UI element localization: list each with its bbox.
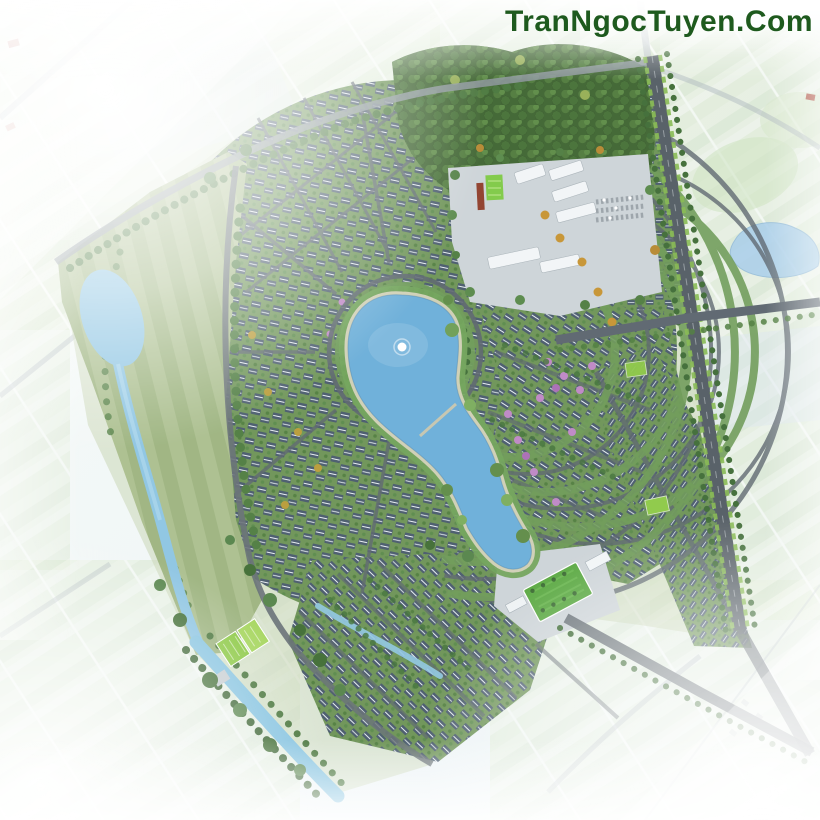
masterplan-image: TranNgocTuyen.Com (0, 0, 820, 820)
watermark-text: TranNgocTuyen.Com (505, 5, 813, 38)
haze-overlays (0, 0, 820, 820)
masterplan-svg: TranNgocTuyen.Com (0, 0, 820, 820)
